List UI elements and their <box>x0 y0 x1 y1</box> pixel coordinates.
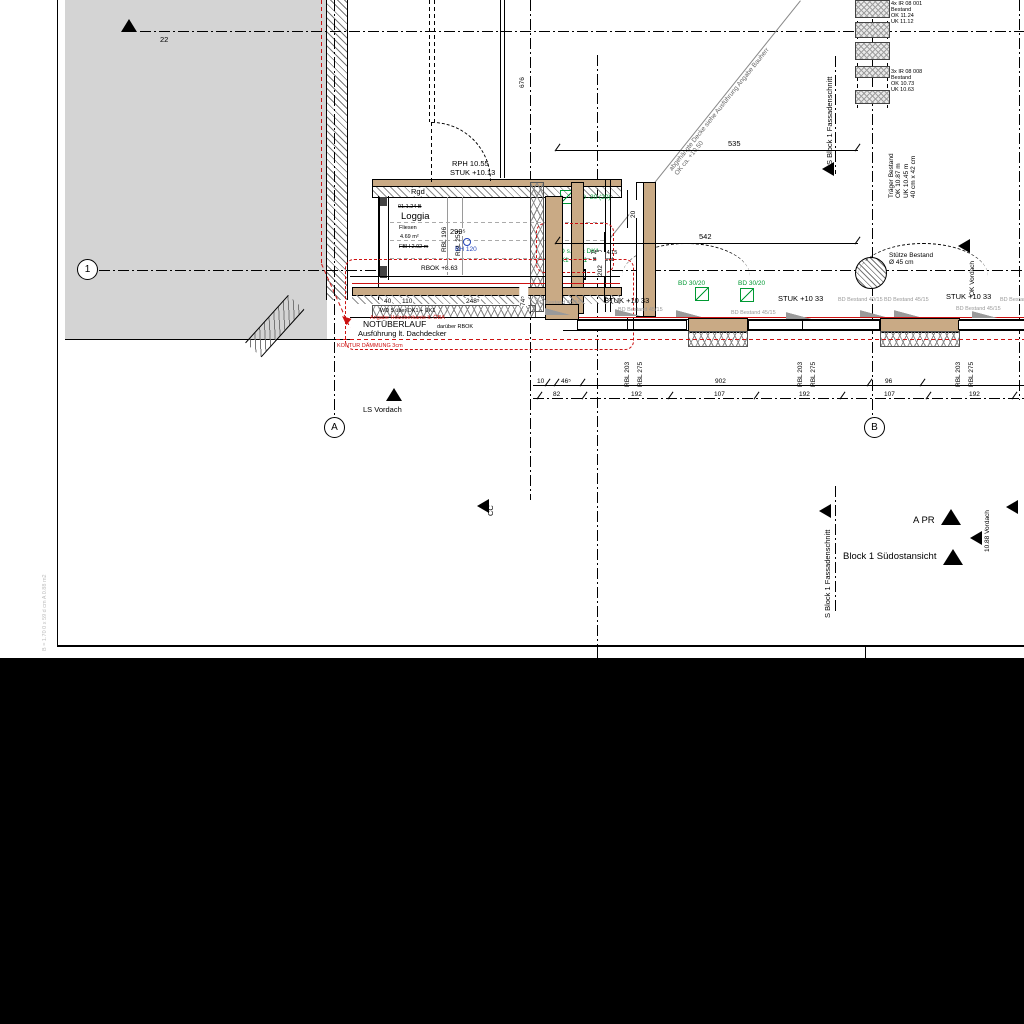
grid-bubble-b-label: B <box>871 422 878 433</box>
stuk-1033-label: STUK +10 33 <box>946 293 991 301</box>
ls-vordach-marker-icon <box>386 388 402 401</box>
grid-bubble-1-label: 1 <box>85 264 91 275</box>
bh-label: BH 120 <box>455 246 477 253</box>
cad-drawing-viewport: 1 A B 22 LS Vordach CC S Block 1 Fassade… <box>0 0 1024 1024</box>
door-leaf-dashed <box>431 122 432 184</box>
wall-edge-line-2 <box>504 0 505 178</box>
beam-note-line: UK 10.63 <box>891 87 922 93</box>
door-jamb-dashed-2 <box>434 0 435 122</box>
stuk-1033-label: STUK +10 33 <box>604 297 649 305</box>
bd-bestand-45-label: BD Bestand 45/15 <box>536 300 581 306</box>
traeger-note-line: UK 10.45 m <box>903 153 910 198</box>
sill-profile-symbol <box>786 312 812 319</box>
ausfuehrung-note: Ausführung lt. Dachdecker <box>358 330 446 338</box>
beam-note-mid: 3x IR 08 008 Bestand OK 10.73 UK 10.63 <box>891 69 922 94</box>
beam-symbol <box>855 66 890 78</box>
grid-bubble-b: B <box>864 417 885 438</box>
dim-chain-bottom-value: 107 <box>883 391 896 398</box>
room-fbh-value: FBH 2.92 m <box>399 244 428 250</box>
room-floor-finish: Fliesen <box>399 225 417 231</box>
dim-202: 202 <box>596 252 605 276</box>
dim-chain-bottom-value: 192 <box>798 391 811 398</box>
border-tick-2 <box>865 645 866 658</box>
fassadenschnitt-label-bottom: S Block 1 Fassadenschnitt <box>824 518 832 618</box>
room-number: 01.1.24 B <box>398 204 422 210</box>
vordach-1088-label: 10.88 Vordach <box>984 492 991 552</box>
axis-line-right <box>1019 0 1020 400</box>
bd-3020-label: BD 30/20 <box>678 280 705 287</box>
beam-symbol <box>855 42 890 60</box>
wd-note: WD 5 über DK1 + UK1 <box>380 308 435 314</box>
dim-chain-bottom-value: 192 <box>630 391 643 398</box>
sill-profile-symbol <box>894 310 920 317</box>
sill-profile-symbol <box>615 309 641 316</box>
dim-676: 676 <box>518 62 527 88</box>
sill-profile-symbol <box>676 310 702 317</box>
beam-note-top: 4x IR 08 001 Bestand OK 11.24 UK 11.12 <box>891 1 922 26</box>
jamb-block-top <box>380 197 387 206</box>
bh-symbol-icon <box>463 238 471 246</box>
rbl-203-label: RBL 203 <box>797 345 804 387</box>
fassadenschnitt-line-top <box>835 56 836 174</box>
beam-symbol <box>855 22 890 38</box>
border-tick-1 <box>597 645 598 658</box>
grid-line-b <box>872 0 873 416</box>
block1-marker-icon <box>943 549 963 565</box>
a-pr-marker-icon <box>941 509 961 525</box>
window-plan-3 <box>802 320 880 330</box>
mullion-line <box>627 318 628 330</box>
black-background-area <box>0 658 1024 1024</box>
rbl-275-label: RBL 275 <box>637 345 644 387</box>
traeger-note: Träger Bestand OK 10.87 m UK 10.45 m 40 … <box>888 153 917 198</box>
mullion-line <box>633 318 634 330</box>
beam-symbol <box>855 90 890 104</box>
dim-535: 535 <box>727 140 742 148</box>
dim-chain-line-bottom <box>533 398 1024 399</box>
room-area-value: 4.69 m² <box>400 234 419 240</box>
bd-symbol-icon <box>740 288 754 302</box>
rgd-label: Rgd <box>410 188 426 196</box>
sheet-border-bottom <box>57 645 1024 647</box>
sill-profile-symbol <box>860 310 886 317</box>
dim-chain-top-value: 902 <box>714 378 727 385</box>
bd-bestand-45-label: BD Bestand 45/15 <box>731 310 776 316</box>
wall-mass-bottom-line <box>65 339 351 340</box>
wall-edge-line-1 <box>500 0 501 178</box>
bd-bestand-45-label: BD Bestand 45/15 <box>884 297 929 303</box>
rbl-275-label: RBL 275 <box>968 345 975 387</box>
abgehaengte-decke-line2: OK ca. +10.50 <box>674 51 777 177</box>
dim-line-535 <box>556 150 858 151</box>
traeger-note-line: Träger Bestand <box>888 153 895 198</box>
door-swing-arc <box>432 122 491 181</box>
dim-22-label: 22 <box>160 36 168 44</box>
a-pr-label: A PR <box>913 516 935 527</box>
dim-chain-top-value: 96 <box>884 378 893 385</box>
bd-bestand-45-label: BD Bestand 45/15 <box>1000 297 1024 303</box>
dim-chain-line-top <box>533 385 1024 386</box>
corner-wall-vertical <box>545 196 563 310</box>
dim-chain-top-value: 46⁵ <box>560 378 572 385</box>
vordach-marker-icon-2 <box>970 531 982 545</box>
rbl-275-label: RBL 275 <box>810 345 817 387</box>
red-hidden-contour-line <box>321 0 322 266</box>
block1-suedost-label: Block 1 Südostansicht <box>843 552 936 563</box>
grid-line-a <box>334 0 335 416</box>
beam-symbol <box>855 0 890 18</box>
window-plan-1 <box>577 320 687 330</box>
axis-line-top <box>140 31 1024 32</box>
fassadenschnitt-label-top: S Block 1 Fassadenschnitt <box>826 57 834 165</box>
grid-bubble-a-label: A <box>331 422 338 433</box>
grid-bubble-1: 1 <box>77 259 98 280</box>
dim-chain-bottom-value: 107 <box>713 391 726 398</box>
bd-3020-label: BD 30/20 <box>738 280 765 287</box>
door-jamb-dashed-1 <box>429 0 430 122</box>
rbl-203-label: RBL 203 <box>955 345 962 387</box>
dim-chain-top-value: 10 <box>536 378 545 385</box>
wall-mass <box>65 0 327 339</box>
window-plan-4 <box>958 320 1024 330</box>
dim-20: 20 <box>629 200 638 218</box>
dim-542: 542 <box>698 233 713 241</box>
room-name: Loggia <box>401 212 430 223</box>
stuk-1033-label: STUK +10 33 <box>778 295 823 303</box>
window-plan-2 <box>748 320 804 330</box>
dim-chain-bottom-value: 82 <box>552 391 561 398</box>
wall-section-hatch <box>326 0 348 300</box>
rbl-left-label: RBL 196 <box>441 210 448 252</box>
traeger-note-line: 40 cm x 42 cm <box>910 153 917 198</box>
bd-bestand-40-label: BD Bestand 40/15 <box>838 297 883 303</box>
sill-profile-symbol <box>972 311 998 318</box>
sill-profile-symbol <box>545 308 571 315</box>
vordach-marker-icon-1 <box>1006 500 1018 514</box>
drawing-sheet: 1 A B 22 LS Vordach CC S Block 1 Fassade… <box>0 0 1024 658</box>
kontur-daemmung-note: KONTUR DÄMMUNG 3cm <box>337 343 403 349</box>
sheet-border-left <box>57 0 58 646</box>
traeger-note-line: OK 10.87 m <box>895 153 902 198</box>
bd-symbol-icon <box>695 287 709 301</box>
axis-line-mid <box>597 55 598 658</box>
fassadenschnitt-line-bottom <box>835 486 836 612</box>
red-dashed-underline <box>336 339 1024 340</box>
cc-label: CC <box>487 494 495 516</box>
dim-chain-bottom-value: 192 <box>968 391 981 398</box>
rbl-203-label: RBL 203 <box>624 345 631 387</box>
ls-vordach-label: LS Vordach <box>363 406 402 414</box>
dim-line-542 <box>556 243 858 244</box>
beam-note-line: UK 11.12 <box>891 19 922 25</box>
sheet-margin-note: B = 1.70 0 x 59 d cm A 0.88 m2 <box>42 533 48 651</box>
dim-line-20 <box>627 190 628 228</box>
level-marker-icon <box>121 19 137 32</box>
abgehaengte-decke-line1: abgehängte Decke siehe Ausführung Angabe… <box>668 47 771 173</box>
grid-bubble-a: A <box>324 417 345 438</box>
abgehaengte-decke-note: abgehängte Decke siehe Ausführung Angabe… <box>668 47 777 177</box>
fassadenschnitt-marker-bottom-icon <box>819 504 831 518</box>
